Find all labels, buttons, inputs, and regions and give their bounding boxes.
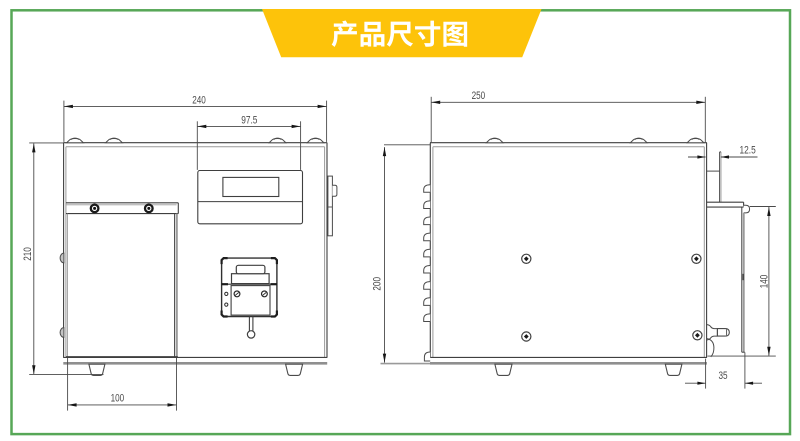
svg-text:12.5: 12.5 <box>740 144 756 156</box>
svg-text:140: 140 <box>758 275 770 289</box>
svg-text:250: 250 <box>472 90 486 102</box>
svg-text:240: 240 <box>192 95 206 107</box>
svg-text:200: 200 <box>372 277 384 291</box>
svg-text:210: 210 <box>22 247 34 261</box>
svg-text:100: 100 <box>111 393 125 405</box>
svg-text:97.5: 97.5 <box>241 115 257 127</box>
svg-text:35: 35 <box>718 370 727 382</box>
